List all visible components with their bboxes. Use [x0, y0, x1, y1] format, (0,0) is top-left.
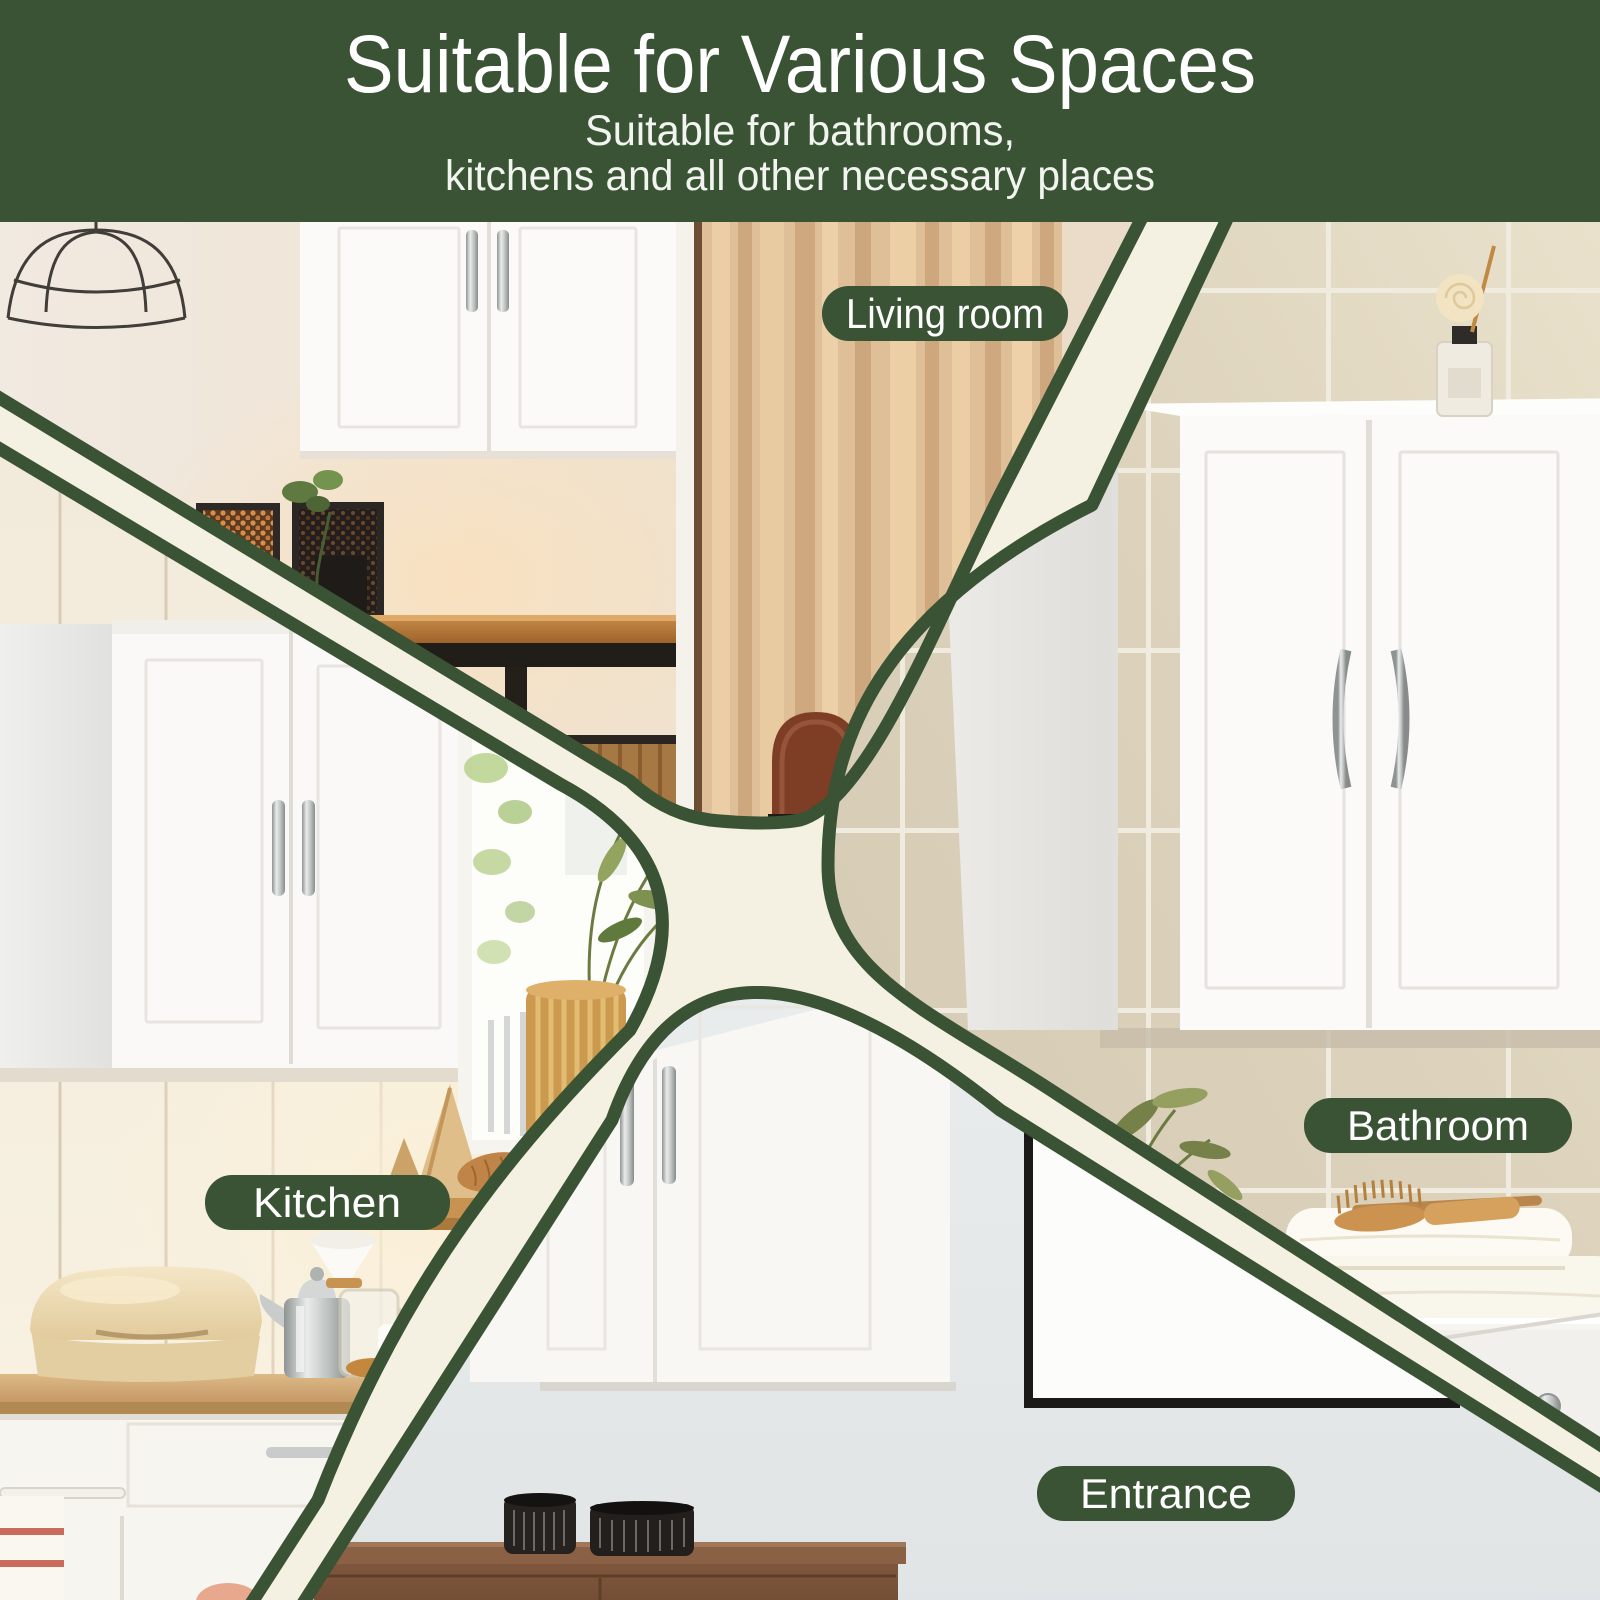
svg-text:Living room: Living room: [846, 290, 1044, 337]
svg-text:Entrance: Entrance: [1080, 1470, 1252, 1517]
svg-text:Bathroom: Bathroom: [1347, 1102, 1529, 1149]
svg-text:Suitable for bathrooms,: Suitable for bathrooms,: [585, 107, 1015, 155]
svg-text:kitchens and all other necessa: kitchens and all other necessary places: [445, 152, 1155, 200]
svg-text:Kitchen: Kitchen: [253, 1179, 401, 1226]
svg-text:Suitable for Various Spaces: Suitable for Various Spaces: [344, 19, 1256, 110]
